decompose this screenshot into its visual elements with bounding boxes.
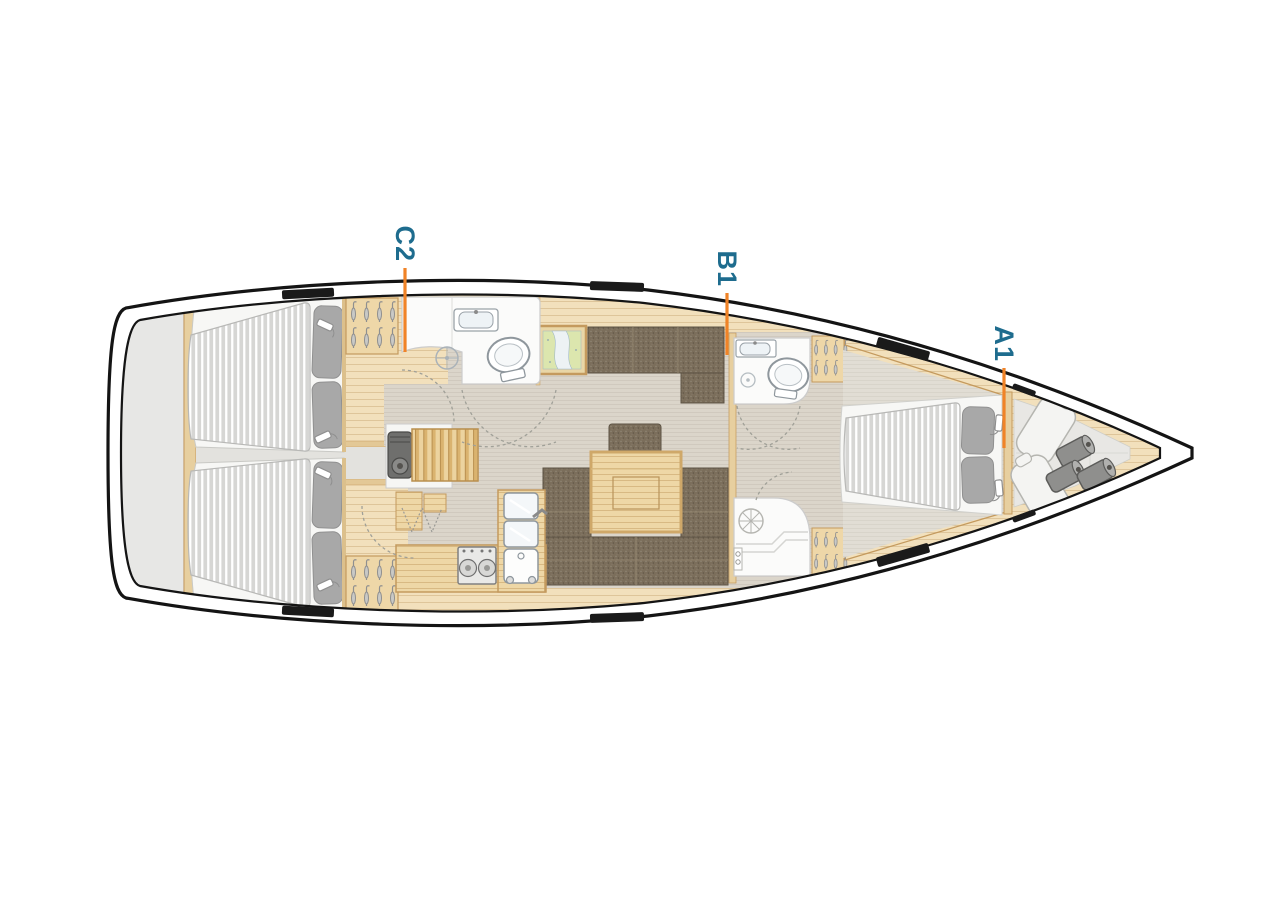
stove bbox=[458, 547, 496, 584]
cabin-wall bbox=[342, 458, 346, 612]
aft-cabin-port bbox=[188, 298, 346, 452]
yacht-deck-plan: C2 B1 A1 bbox=[0, 0, 1280, 905]
mattress bbox=[844, 403, 960, 510]
cabin-label-b1: B1 bbox=[712, 250, 742, 287]
wardrobe-starboard bbox=[346, 556, 398, 612]
washbasin bbox=[736, 340, 776, 357]
deck-hatch bbox=[590, 612, 644, 623]
cabin-label-c2: C2 bbox=[390, 225, 420, 262]
wardrobe-corridor-top bbox=[812, 336, 848, 382]
shower-drain-icon bbox=[436, 347, 458, 369]
wardrobe-port bbox=[346, 298, 398, 354]
nav-chart-table bbox=[538, 326, 586, 374]
companionway-steps bbox=[412, 429, 478, 481]
washbasin bbox=[454, 309, 498, 331]
fridge bbox=[504, 549, 538, 584]
saloon-table bbox=[591, 452, 681, 532]
cabin-wall bbox=[342, 298, 346, 452]
pillow bbox=[312, 531, 343, 604]
yacht-floorplan-page: C2 B1 A1 bbox=[0, 0, 1280, 905]
head-forward bbox=[734, 338, 810, 404]
stern-platform bbox=[121, 310, 185, 594]
pillow bbox=[961, 406, 995, 454]
pillow bbox=[312, 306, 343, 379]
shower-drain-icon bbox=[739, 509, 763, 533]
locker bbox=[424, 494, 446, 512]
shower-room bbox=[734, 498, 810, 576]
aft-cabin-starboard bbox=[188, 458, 346, 612]
deck-hatch bbox=[590, 281, 644, 292]
interior bbox=[100, 270, 1200, 640]
cabin-label-a1: A1 bbox=[989, 325, 1019, 362]
shower-fitting bbox=[734, 548, 742, 570]
pillow bbox=[961, 456, 995, 503]
